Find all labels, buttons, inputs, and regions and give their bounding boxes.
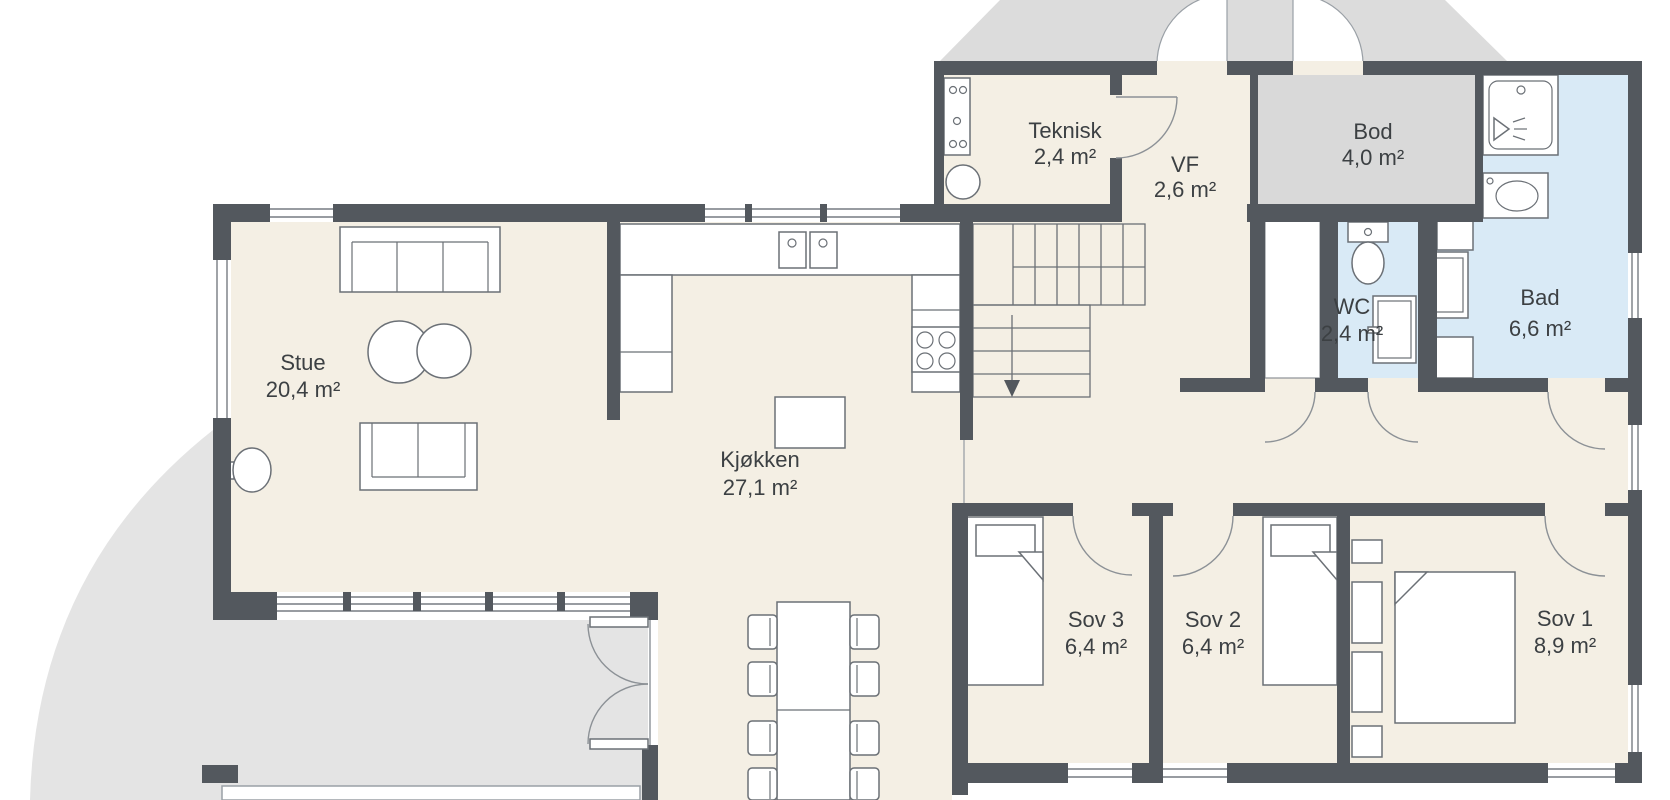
chair-icon [748, 768, 777, 800]
stove-icon [912, 327, 960, 372]
floor-plan-svg: Stue 20,4 m² Kjøkken 27,1 m² Teknisk 2,4… [0, 0, 1670, 800]
dining-table-icon [777, 602, 850, 800]
chair-icon [850, 721, 879, 755]
terrace-railing [222, 786, 640, 800]
window-icon [1628, 685, 1642, 752]
toilet-icon [1348, 222, 1388, 284]
room-name: VF [1171, 152, 1199, 177]
room-name: WC [1334, 294, 1371, 319]
vanity-icon [1483, 173, 1548, 218]
window-icon [1068, 763, 1132, 783]
window-icon [213, 260, 231, 418]
coffee-table-small-icon [417, 324, 471, 378]
bathtub-icon [1483, 75, 1558, 155]
room-label-teknisk: Teknisk 2,4 m² [1028, 118, 1102, 169]
room-area: 2,4 m² [1321, 321, 1383, 346]
room-name: Teknisk [1028, 118, 1102, 143]
boiler-icon [946, 165, 980, 199]
room-area: 2,4 m² [1034, 144, 1096, 169]
hall-closet [1265, 220, 1320, 378]
window-icon [1163, 763, 1227, 783]
room-area: 27,1 m² [723, 475, 798, 500]
room-area: 20,4 m² [266, 377, 341, 402]
room-area: 6,6 m² [1509, 316, 1571, 341]
window-icon [1548, 763, 1615, 783]
floor-plan-viewer: Stue 20,4 m² Kjøkken 27,1 m² Teknisk 2,4… [0, 0, 1670, 800]
room-area: 2,6 m² [1154, 177, 1216, 202]
room-name: Sov 1 [1537, 606, 1593, 631]
sofa-icon [340, 227, 500, 292]
chair-icon [748, 615, 777, 649]
room-name: Stue [280, 350, 325, 375]
bed-single-icon [967, 517, 1043, 685]
room-name: Bad [1520, 285, 1559, 310]
room-area: 6,4 m² [1065, 634, 1127, 659]
window-icon [705, 204, 900, 222]
room-name: Kjøkken [720, 447, 799, 472]
bed-double-icon [1395, 572, 1515, 723]
room-area: 8,9 m² [1534, 633, 1596, 658]
room-area: 4,0 m² [1342, 145, 1404, 170]
terrace-post [202, 765, 238, 783]
chair-icon [850, 768, 879, 800]
window-icon [1628, 425, 1642, 490]
chair-icon [850, 615, 879, 649]
room-name: Sov 2 [1185, 607, 1241, 632]
room-name: Bod [1353, 119, 1392, 144]
room-area: 6,4 m² [1182, 634, 1244, 659]
kitchen-island-icon [775, 397, 845, 448]
window-icon [270, 204, 333, 222]
electrical-panel-icon [944, 78, 970, 155]
room-name: Sov 3 [1068, 607, 1124, 632]
chair-icon [748, 662, 777, 696]
chair-icon [748, 721, 777, 755]
chair-icon [850, 662, 879, 696]
window-icon [277, 592, 630, 620]
window-icon [1628, 253, 1642, 318]
bed-single-icon [1263, 517, 1337, 685]
loveseat-icon [360, 423, 477, 490]
